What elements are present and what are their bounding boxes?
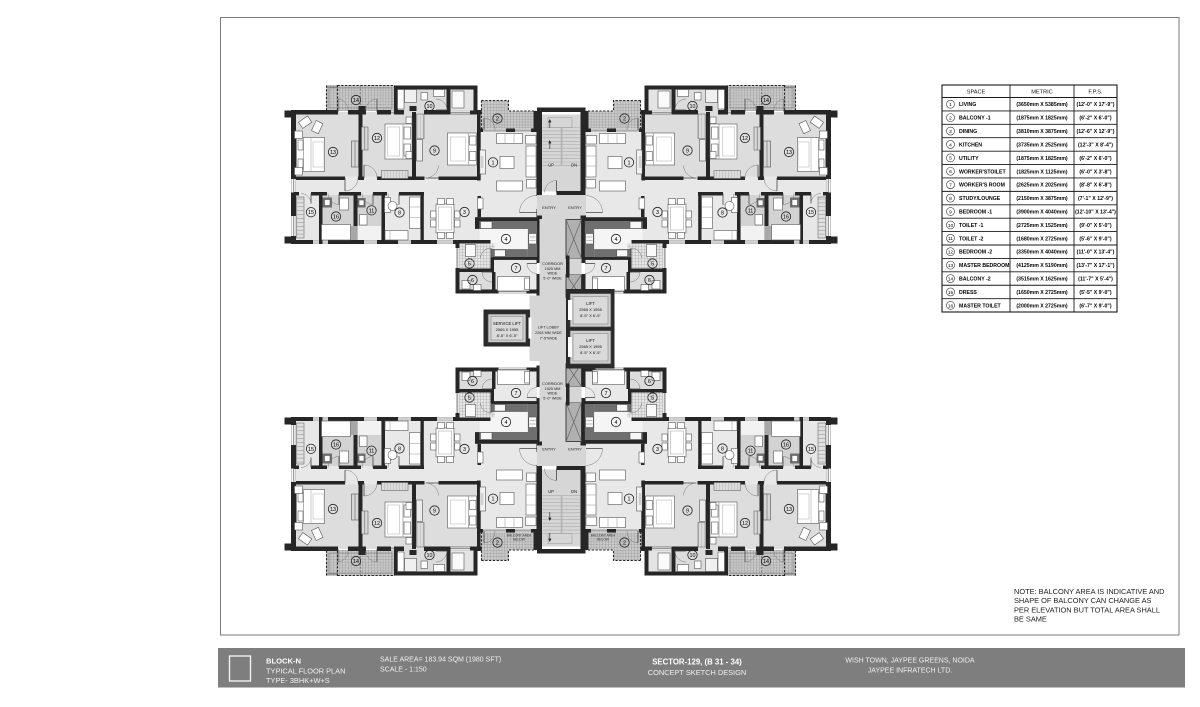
- svg-text:3: 3: [656, 210, 659, 216]
- svg-text:UP: UP: [548, 163, 554, 168]
- svg-text:WIDE: WIDE: [548, 392, 558, 396]
- svg-text:CORRIDOR: CORRIDOR: [542, 382, 563, 386]
- svg-text:(4125mm X 5190mm): (4125mm X 5190mm): [1016, 263, 1068, 269]
- svg-text:9: 9: [686, 149, 689, 155]
- svg-text:13: 13: [330, 507, 336, 513]
- svg-text:7'-5"WIDE: 7'-5"WIDE: [540, 336, 558, 340]
- svg-text:WIDE: WIDE: [548, 272, 558, 276]
- svg-text:16: 16: [333, 443, 339, 449]
- svg-text:(2725mm X 1525mm): (2725mm X 1525mm): [1016, 223, 1068, 229]
- svg-text:LIFT: LIFT: [586, 301, 595, 306]
- svg-text:UP: UP: [548, 489, 554, 494]
- svg-text:(7'-1" X 12'-9"): (7'-1" X 12'-9"): [1078, 196, 1113, 202]
- svg-text:ENTRY: ENTRY: [568, 205, 582, 210]
- svg-text:BELOW: BELOW: [597, 538, 609, 542]
- svg-text:(6'-0" X 3'-8"): (6'-0" X 3'-8"): [1079, 169, 1111, 175]
- svg-text:CONCEPT SKETCH DESIGN: CONCEPT SKETCH DESIGN: [648, 668, 746, 677]
- svg-text:10: 10: [690, 553, 696, 559]
- svg-text:(2625mm X 2025mm): (2625mm X 2025mm): [1016, 183, 1068, 189]
- svg-text:BELOW: BELOW: [513, 538, 525, 542]
- svg-text:2: 2: [949, 116, 952, 122]
- svg-text:16: 16: [333, 215, 339, 221]
- svg-text:(12'-6" X 12'-9"): (12'-6" X 12'-9"): [1077, 129, 1115, 135]
- svg-text:10: 10: [690, 104, 696, 110]
- svg-text:15: 15: [808, 447, 814, 453]
- svg-text:TOILET -1: TOILET -1: [959, 223, 984, 229]
- svg-text:6: 6: [648, 278, 651, 284]
- svg-text:DRESS: DRESS: [959, 290, 977, 296]
- svg-text:2565 X 1955: 2565 X 1955: [496, 327, 519, 332]
- svg-text:6: 6: [949, 169, 952, 175]
- svg-text:(9'-0" X 5'-0"): (9'-0" X 5'-0"): [1079, 223, 1111, 229]
- svg-text:14: 14: [948, 276, 954, 282]
- svg-text:SECTOR-129, (B 31 - 34): SECTOR-129, (B 31 - 34): [652, 658, 742, 667]
- svg-text:MASTER BEDROOM: MASTER BEDROOM: [959, 263, 1009, 269]
- svg-text:2263 MM WIDE: 2263 MM WIDE: [535, 331, 562, 335]
- svg-text:2: 2: [623, 541, 626, 547]
- svg-text:MASTER TOILET: MASTER TOILET: [959, 303, 1002, 309]
- svg-text:4: 4: [949, 142, 952, 148]
- svg-text:CORRIDOR: CORRIDOR: [542, 262, 563, 266]
- svg-text:11: 11: [369, 208, 375, 214]
- svg-text:14: 14: [763, 559, 769, 565]
- svg-text:16: 16: [783, 215, 789, 221]
- svg-text:11: 11: [748, 208, 754, 214]
- svg-text:12: 12: [374, 136, 380, 142]
- svg-text:2565 X 1955: 2565 X 1955: [579, 344, 602, 349]
- svg-text:6: 6: [648, 379, 651, 385]
- svg-text:(12'-10" X 13'-4"): (12'-10" X 13'-4"): [1075, 209, 1116, 215]
- svg-text:(1875mm X 1825mm): (1875mm X 1825mm): [1016, 156, 1068, 162]
- svg-text:SCALE - 1:150: SCALE - 1:150: [380, 667, 427, 674]
- svg-text:(1650mm X 2725mm): (1650mm X 2725mm): [1016, 290, 1068, 296]
- svg-text:15: 15: [308, 210, 314, 216]
- svg-text:12: 12: [374, 521, 380, 527]
- svg-text:16: 16: [783, 443, 789, 449]
- svg-text:WORKER'S ROOM: WORKER'S ROOM: [959, 183, 1005, 189]
- svg-text:UTILITY: UTILITY: [959, 156, 979, 162]
- svg-text:1525 MM: 1525 MM: [545, 267, 561, 271]
- svg-text:ENTRY: ENTRY: [542, 205, 556, 210]
- svg-text:5'-0" WIDE: 5'-0" WIDE: [543, 397, 562, 401]
- svg-text:PER ELEVATION BUT TOTAL AREA S: PER ELEVATION BUT TOTAL AREA SHALL: [1014, 605, 1160, 614]
- svg-text:11: 11: [748, 449, 754, 455]
- svg-text:7: 7: [949, 183, 952, 189]
- svg-text:10: 10: [427, 553, 433, 559]
- svg-text:2565 X 1955: 2565 X 1955: [579, 307, 602, 312]
- svg-text:13: 13: [948, 263, 954, 269]
- svg-text:2: 2: [623, 117, 626, 123]
- svg-text:BLOCK-N: BLOCK-N: [266, 657, 301, 666]
- svg-text:14: 14: [353, 98, 359, 104]
- svg-text:12: 12: [742, 521, 748, 527]
- svg-text:SHAPE OF BALCONY CAN CHANGE AS: SHAPE OF BALCONY CAN CHANGE AS: [1014, 596, 1152, 605]
- svg-text:BEDROOM -1: BEDROOM -1: [959, 209, 992, 215]
- svg-text:BEDROOM -2: BEDROOM -2: [959, 250, 992, 256]
- svg-text:5: 5: [651, 396, 654, 402]
- svg-text:SERVICE LIFT: SERVICE LIFT: [493, 321, 522, 326]
- svg-text:15: 15: [948, 290, 954, 296]
- svg-text:1: 1: [492, 160, 495, 166]
- svg-text:F.P.S.: F.P.S.: [1088, 90, 1103, 96]
- svg-text:SPACE: SPACE: [967, 90, 986, 96]
- svg-text:TOILET -2: TOILET -2: [959, 236, 984, 242]
- svg-text:(1825mm X 1125mm): (1825mm X 1125mm): [1016, 169, 1067, 175]
- svg-text:8'-5" X 6'-5": 8'-5" X 6'-5": [497, 333, 518, 338]
- svg-text:ENTRY: ENTRY: [542, 447, 556, 452]
- svg-text:8: 8: [398, 447, 401, 453]
- svg-text:12: 12: [742, 136, 748, 142]
- svg-text:3: 3: [463, 210, 466, 216]
- svg-text:4: 4: [615, 237, 618, 243]
- svg-text:(6'-2" X 6'-0"): (6'-2" X 6'-0"): [1079, 156, 1111, 162]
- svg-text:TYPICAL FLOOR PLAN: TYPICAL FLOOR PLAN: [266, 667, 345, 676]
- svg-text:(11'-0" X 13'-4"): (11'-0" X 13'-4"): [1077, 250, 1115, 256]
- svg-text:4: 4: [505, 420, 508, 426]
- svg-text:1: 1: [628, 497, 631, 503]
- svg-text:LIFT LOBBY: LIFT LOBBY: [538, 326, 560, 330]
- svg-text:LIFT: LIFT: [586, 338, 595, 343]
- svg-text:1: 1: [628, 160, 631, 166]
- svg-text:(3350mm X 4040mm): (3350mm X 4040mm): [1016, 250, 1068, 256]
- svg-text:10: 10: [948, 223, 954, 229]
- svg-text:3: 3: [463, 447, 466, 453]
- svg-text:KITCHEN: KITCHEN: [959, 142, 982, 148]
- svg-text:STUDY/LOUNGE: STUDY/LOUNGE: [959, 196, 1001, 202]
- svg-text:(12'-3" X 8'-4"): (12'-3" X 8'-4"): [1078, 142, 1113, 148]
- svg-text:4: 4: [505, 237, 508, 243]
- svg-text:METRIC: METRIC: [1031, 90, 1052, 96]
- svg-text:13: 13: [330, 150, 336, 156]
- svg-text:1: 1: [949, 102, 952, 108]
- svg-text:NOTE: BALCONY AREA IS INDICATI: NOTE: BALCONY AREA IS INDICATIVE AND: [1014, 587, 1164, 596]
- svg-text:LIVING: LIVING: [959, 102, 976, 108]
- svg-text:5: 5: [949, 156, 952, 162]
- svg-text:5: 5: [651, 262, 654, 268]
- svg-text:12: 12: [948, 250, 954, 256]
- svg-text:(3515mm X 1625mm): (3515mm X 1625mm): [1016, 277, 1068, 283]
- svg-text:13: 13: [786, 150, 792, 156]
- svg-text:(3810mm X 3875mm): (3810mm X 3875mm): [1016, 129, 1068, 135]
- svg-text:WISH TOWN, JAYPEE GREENS, NOID: WISH TOWN, JAYPEE GREENS, NOIDA: [845, 658, 974, 665]
- svg-text:JAYPEE INFRATECH LTD.: JAYPEE INFRATECH LTD.: [868, 668, 952, 675]
- svg-text:8'-5" X 6'-5": 8'-5" X 6'-5": [580, 313, 601, 318]
- svg-text:8: 8: [949, 196, 952, 202]
- svg-text:10: 10: [427, 104, 433, 110]
- svg-text:11: 11: [948, 236, 953, 242]
- svg-text:BALCONY -2: BALCONY -2: [959, 277, 991, 283]
- svg-text:WORKER'STOILET: WORKER'STOILET: [959, 169, 1007, 175]
- svg-text:9: 9: [949, 209, 952, 215]
- svg-text:5: 5: [468, 262, 471, 268]
- svg-text:(1875mm X 1825mm): (1875mm X 1825mm): [1016, 116, 1068, 122]
- svg-text:(2000mm X 2725mm): (2000mm X 2725mm): [1016, 303, 1068, 309]
- svg-text:(13'-7" X 17'-1"): (13'-7" X 17'-1"): [1077, 263, 1115, 269]
- svg-text:14: 14: [353, 559, 359, 565]
- svg-text:(12'-0" X 17'-9"): (12'-0" X 17'-9"): [1077, 102, 1115, 108]
- svg-text:ENTRY: ENTRY: [568, 447, 582, 452]
- svg-text:(5'-6" X 9'-0"): (5'-6" X 9'-0"): [1079, 236, 1111, 242]
- svg-text:7: 7: [515, 391, 518, 397]
- svg-text:15: 15: [808, 210, 814, 216]
- svg-text:8: 8: [721, 211, 724, 217]
- svg-text:14: 14: [763, 98, 769, 104]
- svg-text:8'-5" X 6'-5": 8'-5" X 6'-5": [580, 350, 601, 355]
- svg-text:6: 6: [471, 379, 474, 385]
- svg-text:(3650mm X 5385mm): (3650mm X 5385mm): [1016, 102, 1068, 108]
- svg-text:7: 7: [515, 266, 518, 272]
- svg-text:(6'-7" X 9'-0"): (6'-7" X 9'-0"): [1079, 303, 1111, 309]
- svg-text:5: 5: [468, 396, 471, 402]
- svg-text:SALE AREA= 183.94 SQM (1980 SF: SALE AREA= 183.94 SQM (1980 SFT): [380, 657, 501, 664]
- svg-text:TYPE- 3BHK+W+S: TYPE- 3BHK+W+S: [266, 676, 330, 685]
- svg-text:9: 9: [433, 149, 436, 155]
- svg-text:DN: DN: [571, 489, 577, 494]
- svg-text:7: 7: [605, 266, 608, 272]
- svg-text:3: 3: [949, 129, 952, 135]
- svg-text:(1680mm X 2725mm): (1680mm X 2725mm): [1016, 236, 1068, 242]
- svg-text:8: 8: [721, 447, 724, 453]
- svg-text:7: 7: [605, 391, 608, 397]
- svg-text:1: 1: [492, 497, 495, 503]
- svg-text:BALCONY -1: BALCONY -1: [959, 116, 991, 122]
- svg-text:9: 9: [686, 509, 689, 515]
- svg-text:11: 11: [369, 449, 375, 455]
- svg-text:(3735mm X 2525mm): (3735mm X 2525mm): [1016, 142, 1068, 148]
- svg-text:2: 2: [496, 541, 499, 547]
- svg-text:6: 6: [471, 278, 474, 284]
- svg-text:13: 13: [786, 507, 792, 513]
- svg-text:(8'-8" X 6'-8"): (8'-8" X 6'-8"): [1079, 183, 1111, 189]
- svg-text:8: 8: [398, 211, 401, 217]
- svg-text:(3900mm X 4040mm): (3900mm X 4040mm): [1016, 209, 1068, 215]
- svg-text:DN: DN: [571, 163, 577, 168]
- svg-text:(2150mm X 3875mm): (2150mm X 3875mm): [1016, 196, 1068, 202]
- svg-text:(5'-5" X 9'-0"): (5'-5" X 9'-0"): [1079, 290, 1111, 296]
- svg-text:5'-0" WIDE: 5'-0" WIDE: [543, 277, 562, 281]
- svg-text:(11'-7" X 5'-4"): (11'-7" X 5'-4"): [1078, 277, 1113, 283]
- svg-text:15: 15: [308, 447, 314, 453]
- svg-text:BE SAME: BE SAME: [1014, 615, 1047, 624]
- svg-text:16: 16: [948, 303, 954, 309]
- svg-text:(6'-2" X 6'-0"): (6'-2" X 6'-0"): [1079, 116, 1111, 122]
- svg-text:3: 3: [656, 447, 659, 453]
- svg-text:1525 MM: 1525 MM: [545, 387, 561, 391]
- svg-text:2: 2: [496, 117, 499, 123]
- svg-text:4: 4: [615, 420, 618, 426]
- svg-text:DINING: DINING: [959, 129, 977, 135]
- svg-text:9: 9: [433, 509, 436, 515]
